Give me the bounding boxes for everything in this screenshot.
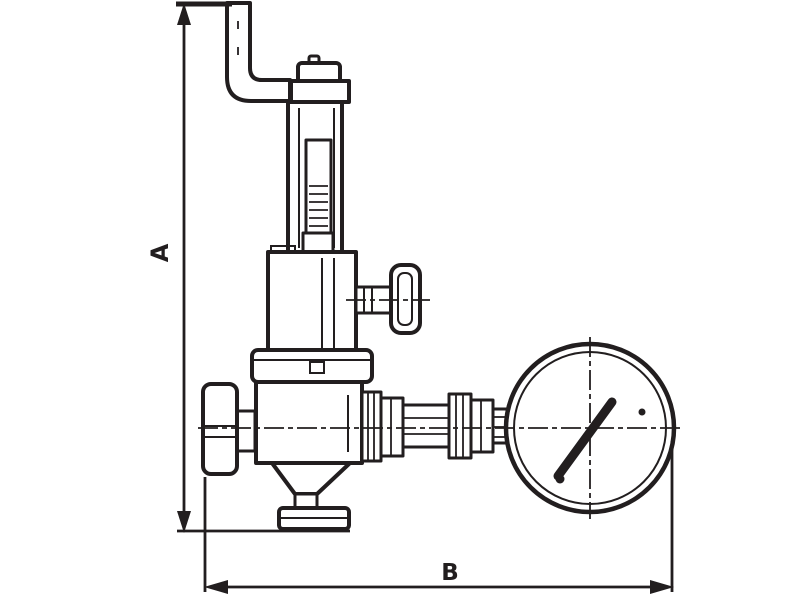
dial-mark-dot (639, 409, 646, 416)
dimension-b-arrow-left (204, 580, 228, 594)
dimension-b-label: B (441, 560, 459, 586)
inlet-cap (203, 384, 237, 474)
gauge-pipe (403, 405, 449, 447)
union-fitting (362, 392, 381, 461)
drawing-canvas: A B (0, 0, 800, 598)
dimension-b-arrow-right (650, 580, 674, 594)
screw-lock-nut (303, 233, 333, 252)
body-taper (272, 463, 350, 494)
outlet-neck (295, 494, 317, 508)
housing-collar (291, 81, 349, 102)
diaphragm-flange (252, 350, 372, 382)
union-nut (449, 394, 471, 458)
inlet-stub (237, 411, 255, 451)
hex-fitting (471, 400, 493, 452)
dimension-a-label: A (146, 243, 174, 262)
discharge-pipe (227, 3, 290, 101)
valve-assembly (198, 3, 683, 529)
bonnet (268, 252, 356, 352)
fitting-nut (381, 398, 403, 456)
valve-body (256, 382, 362, 463)
valve-dimension-drawing: A B (0, 0, 800, 598)
needle-tail-dot (556, 475, 565, 484)
side-tee-handle (391, 265, 420, 333)
